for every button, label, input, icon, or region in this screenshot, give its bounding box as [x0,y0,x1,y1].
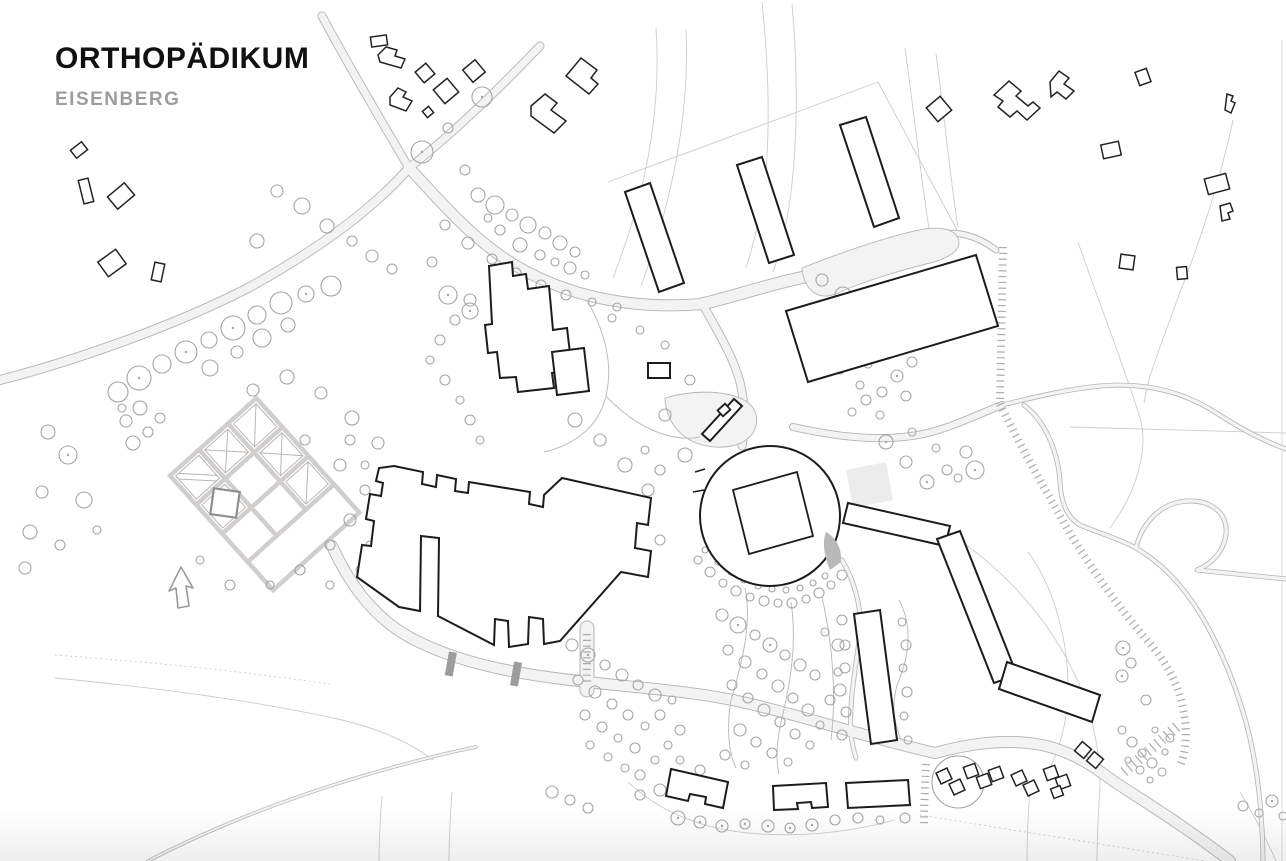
campus-buildings [357,117,1100,810]
stepped-building-annex [552,348,589,395]
bottom-row-building-1 [666,769,728,808]
road-edges [0,16,1286,861]
bottom-row-building-2 [773,783,828,810]
site-plan-canvas: ORTHOPÄDIKUM EISENBERG [0,0,1286,861]
south-dorm-building [854,610,897,744]
bottom-row-building-3 [846,780,910,808]
garden-parterre [170,398,359,590]
north-arrow [169,567,193,608]
north-bar-building-2 [737,157,794,263]
bottom-shadow [0,809,1286,861]
east-wing-bar-2 [937,531,1017,683]
garden-square [210,488,239,517]
page-subtitle: EISENBERG [55,89,309,111]
page-title: ORTHOPÄDIKUM [55,42,309,76]
east-wing-bar-1 [843,503,950,546]
terrain-lines [55,2,1286,861]
road-surfaces [0,16,1286,861]
north-bar-building-3 [840,117,899,227]
east-wing-bar-3 [999,662,1100,722]
site-plan-drawing [0,0,1286,861]
title-block: ORTHOPÄDIKUM EISENBERG [55,42,309,111]
north-bar-building-1 [625,183,684,292]
small-rect-building [648,363,670,378]
main-clinic-building [357,466,651,647]
